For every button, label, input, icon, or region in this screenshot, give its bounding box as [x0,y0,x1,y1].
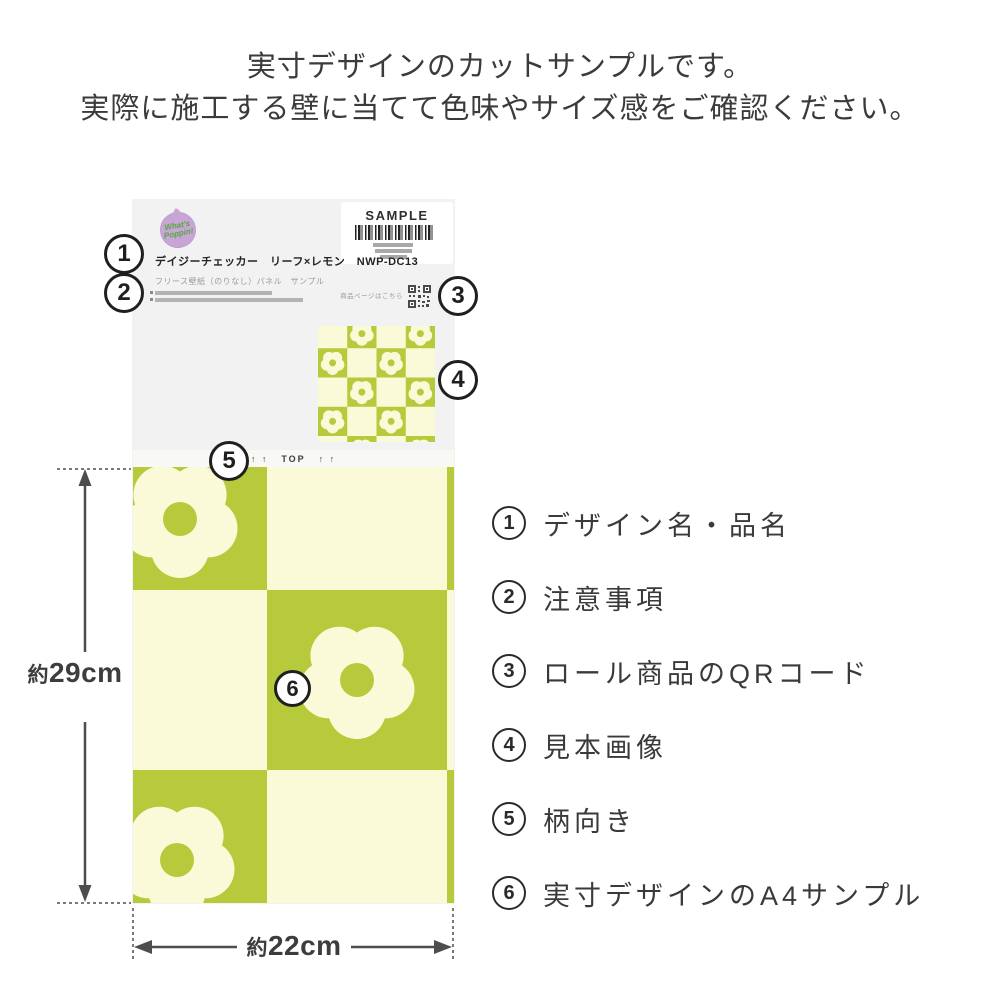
legend-label-1: デザイン名・品名 [543,504,791,543]
callout-6-a4-sample: 6 [274,670,311,707]
brand-logo: What's Poppin! [157,209,199,251]
legend-item-qr-code: 3 ロール商品のQRコード [492,654,924,688]
note-bullet [150,298,153,301]
legend-item-a4-sample: 6 実寸デザインのA4サンプル [492,876,924,910]
page-caption: 実寸デザインのカットサンプルです。 実際に施工する壁に当てて色味やサイズ感をご確… [0,46,1000,130]
legend-number-5: 5 [492,802,526,836]
product-info-page: 実寸デザインのカットサンプルです。 実際に施工する壁に当てて色味やサイズ感をご確… [0,0,1000,1000]
legend-number-4: 4 [492,728,526,762]
legend-label-2: 注意事項 [543,578,667,617]
height-dimension-label: 約29cm [25,657,125,689]
redacted-note-line [155,298,303,302]
redacted-note-line [155,291,272,295]
redacted-code-line [375,249,412,253]
up-arrows-icon: ↑ ↑ [251,454,269,464]
legend-item-specimen: 4 見本画像 [492,728,924,762]
qr-code-icon [408,285,431,308]
redacted-code-line [373,243,413,247]
caption-line-1: 実寸デザインのカットサンプルです。 [0,46,1000,88]
qr-caption: 商品ページはこちら [333,290,403,300]
legend-number-6: 6 [492,876,526,910]
legend-number-1: 1 [492,506,526,540]
legend-label-3: ロール商品のQRコード [543,652,871,691]
callout-1-design-name: 1 [104,234,144,274]
pattern-specimen-image [318,326,435,442]
width-dimension-label: 約22cm [244,930,344,962]
callout-2-notes: 2 [104,273,144,313]
up-arrows-icon: ↑ ↑ [319,454,337,464]
legend-item-design-name: 1 デザイン名・品名 [492,506,924,540]
pattern-direction-strip: ↑ ↑ TOP ↑ ↑ [133,450,454,467]
legend-item-direction: 5 柄向き [492,802,924,836]
product-subtitle: フリース壁紙（のりなし）パネル サンプル [155,276,435,287]
cut-sample-sheet: What's Poppin! SAMPLE デイジーチェッカー リーフ×レモン … [133,200,454,903]
caption-line-2: 実際に施工する壁に当てて色味やサイズ感をご確認ください。 [0,88,1000,130]
legend-number-2: 2 [492,580,526,614]
sample-label: SAMPLE [341,208,453,223]
callout-5-direction: 5 [209,441,249,481]
callout-3-qr-code: 3 [438,276,478,316]
product-name: デイジーチェッカー リーフ×レモン NWP-DC13 [155,253,445,269]
legend-label-4: 見本画像 [543,726,667,765]
legend-label-5: 柄向き [543,800,636,839]
callout-4-specimen: 4 [438,360,478,400]
legend-item-notes: 2 注意事項 [492,580,924,614]
callout-legend: 1 デザイン名・品名 2 注意事項 3 ロール商品のQRコード 4 見本画像 5… [492,506,924,950]
legend-number-3: 3 [492,654,526,688]
top-direction-label: TOP [281,454,305,464]
sample-sheet-header: What's Poppin! SAMPLE デイジーチェッカー リーフ×レモン … [133,200,454,450]
barcode [355,225,434,240]
note-bullet [150,291,153,294]
legend-label-6: 実寸デザインのA4サンプル [543,874,924,913]
